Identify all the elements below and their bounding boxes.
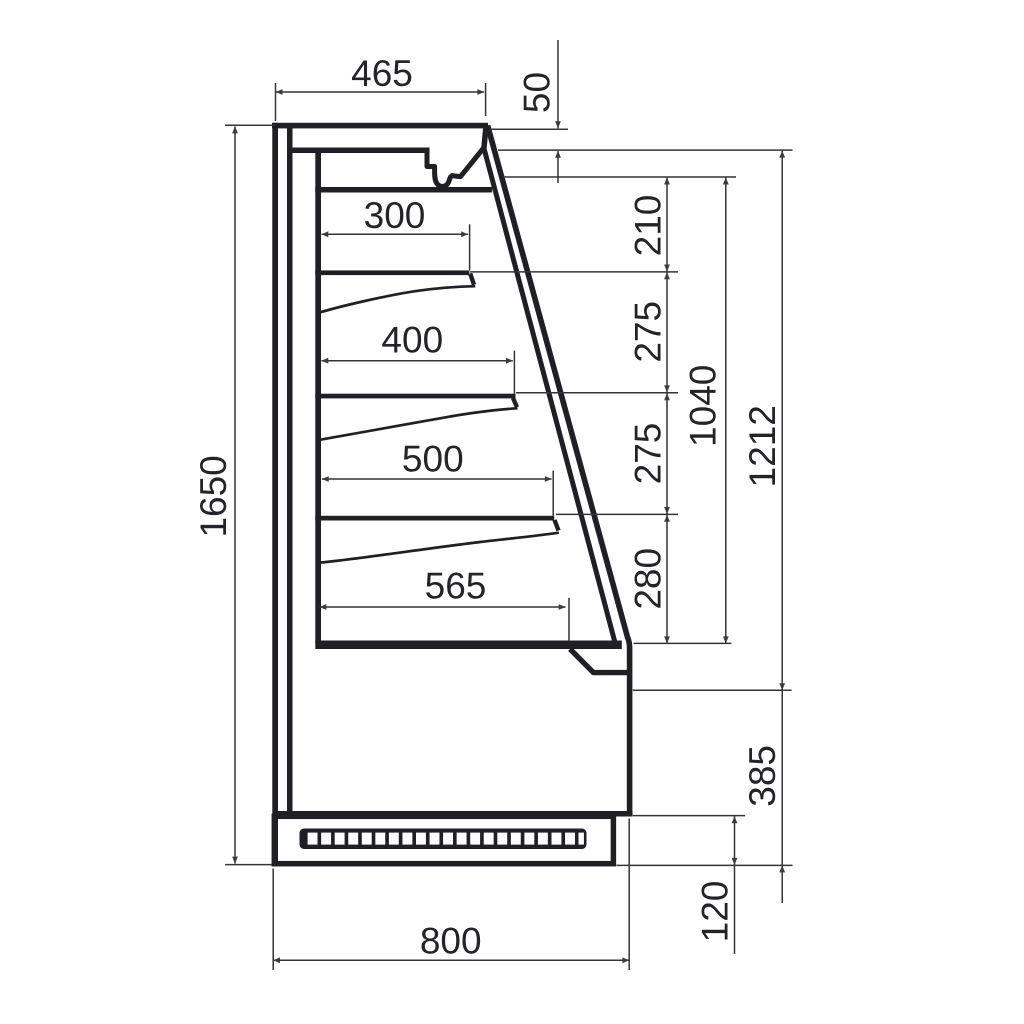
svg-text:50: 50 [517,72,558,113]
svg-text:275: 275 [627,423,668,485]
svg-text:120: 120 [695,881,736,943]
svg-text:565: 565 [425,566,487,607]
svg-text:1650: 1650 [193,455,234,537]
svg-text:210: 210 [627,195,668,257]
svg-text:275: 275 [627,301,668,363]
svg-text:400: 400 [381,320,443,361]
svg-text:800: 800 [420,921,482,962]
svg-text:280: 280 [627,548,668,610]
svg-text:500: 500 [402,439,464,480]
svg-text:1040: 1040 [682,365,723,447]
svg-text:1212: 1212 [742,405,783,487]
svg-text:465: 465 [351,53,413,94]
svg-text:300: 300 [364,195,426,236]
svg-text:385: 385 [742,745,783,807]
